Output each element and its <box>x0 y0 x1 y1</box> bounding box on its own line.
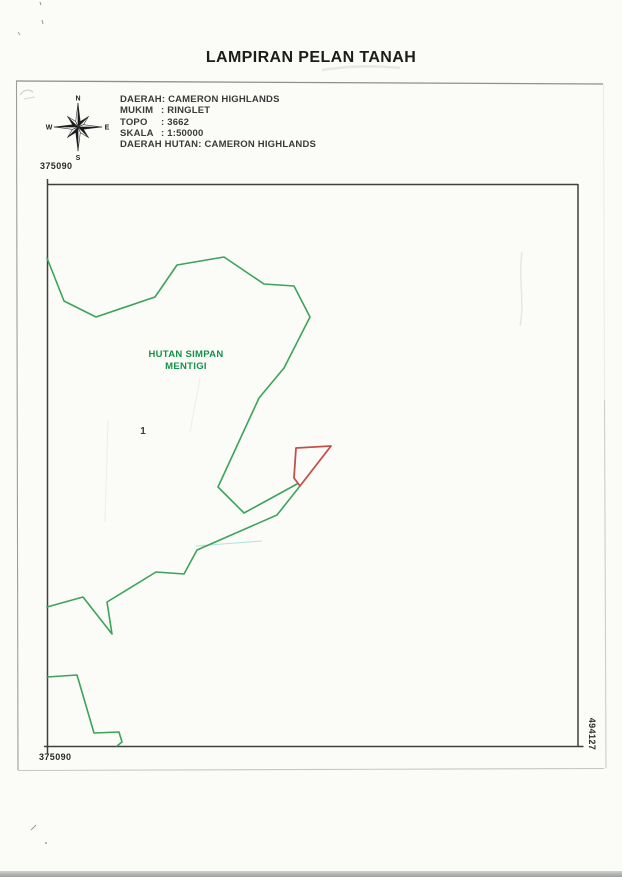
plan-legend: DAERAH: CAMERON HIGHLANDS MUKIM: RINGLET… <box>120 94 316 150</box>
compass-east-label: E <box>105 125 110 132</box>
forest-boundary-lower <box>47 486 300 634</box>
scan-artifact-bottom-edge <box>0 871 622 877</box>
subject-lot-boundary <box>294 446 331 486</box>
coordinate-label-bottom-left: 375090 <box>39 752 71 762</box>
legend-value: RINGLET <box>167 105 210 116</box>
legend-label: DAERAH HUTAN <box>120 139 198 150</box>
forest-reserve-label: HUTAN SIMPAN MENTIGI <box>148 349 223 372</box>
legend-value: 3662 <box>167 117 189 128</box>
compass-west-label: W <box>46 125 53 132</box>
legend-row-skala: SKALA: 1:50000 <box>120 128 316 139</box>
parcel-number-label: 1 <box>140 426 146 437</box>
compass-north-label: N <box>75 96 80 103</box>
compass-south-label: S <box>76 155 81 162</box>
forest-reserve-label-line1: HUTAN SIMPAN <box>148 349 223 361</box>
map-features <box>47 257 331 746</box>
coordinate-label-right: 494127 <box>587 717 597 751</box>
legend-label: DAERAH <box>120 94 162 105</box>
forest-boundary-upper <box>47 257 310 513</box>
legend-row-mukim: MUKIM: RINGLET <box>120 105 316 116</box>
legend-row-daerah: DAERAH: CAMERON HIGHLANDS <box>120 94 316 105</box>
compass-rose-icon: N E S W <box>46 96 110 163</box>
legend-separator: : <box>161 128 164 139</box>
legend-separator: : <box>161 105 164 116</box>
forest-boundary-southwest <box>47 675 122 746</box>
legend-label: SKALA <box>120 128 161 139</box>
legend-label: MUKIM <box>120 105 161 116</box>
legend-separator: : <box>198 139 201 150</box>
legend-separator: : <box>161 117 164 128</box>
legend-label: TOPO <box>120 117 161 128</box>
coordinate-label-top-left: 375090 <box>40 161 72 171</box>
scanned-plan-page: N E S W LAMPIRAN PELAN TANAH DAERAH: CAM… <box>0 0 622 877</box>
legend-row-daerah-hutan: DAERAH HUTAN: CAMERON HIGHLANDS <box>120 139 316 150</box>
legend-row-topo: TOPO: 3662 <box>120 117 316 128</box>
forest-reserve-label-line2: MENTIGI <box>148 361 223 373</box>
legend-value: 1:50000 <box>167 128 203 139</box>
map-frame <box>44 179 584 755</box>
legend-separator: : <box>162 94 165 105</box>
page-title: LAMPIRAN PELAN TANAH <box>0 49 622 67</box>
legend-value: CAMERON HIGHLANDS <box>204 139 316 150</box>
legend-value: CAMERON HIGHLANDS <box>168 94 280 105</box>
